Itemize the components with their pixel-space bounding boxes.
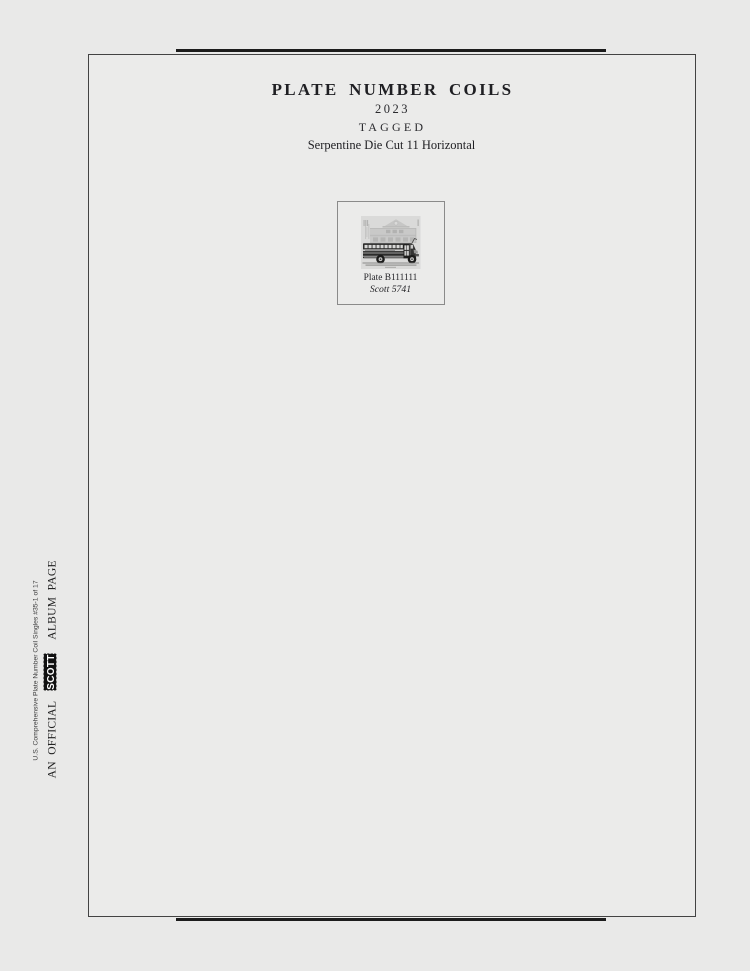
svg-text:SCOTT: SCOTT — [46, 654, 57, 689]
svg-text:ALBUM PAGE: ALBUM PAGE — [46, 560, 58, 640]
svg-text:U.S. Comprehensive Plate Numbe: U.S. Comprehensive Plate Number Coil Sin… — [33, 580, 40, 760]
svg-text:AN OFFICIAL: AN OFFICIAL — [46, 701, 58, 779]
